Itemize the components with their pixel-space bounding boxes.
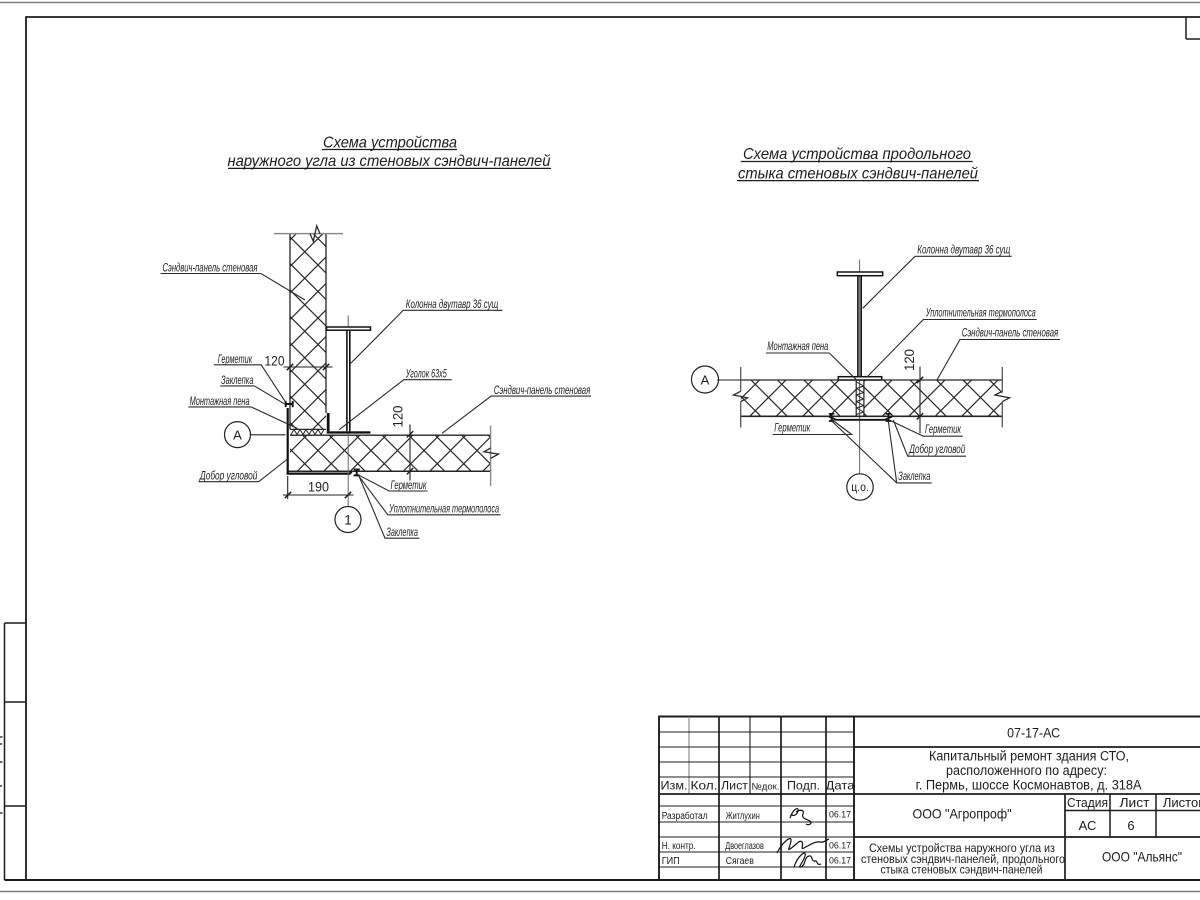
svg-text:Колонна двутавр 36 сущ: Колонна двутавр 36 сущ [917,244,1010,256]
svg-text:Лист: Лист [1120,795,1150,810]
svg-text:Герметик: Герметик [391,480,427,492]
svg-text:Сэндвич-панель стеновая: Сэндвич-панель стеновая [494,385,591,397]
svg-text:06.17: 06.17 [829,856,851,866]
svg-text:06.17: 06.17 [829,810,851,820]
svg-text:Уплотнительная термополоса: Уплотнительная термополоса [925,308,1036,320]
svg-text:ГИП: ГИП [662,856,680,867]
svg-text:Герметик: Герметик [925,424,961,436]
svg-text:Схема устройства продольного: Схема устройства продольного [743,146,971,163]
svg-text:Капитальный ремонт здания СТО,: Капитальный ремонт здания СТО, [929,749,1129,764]
svg-text:стыка стеновых сэндвич-панелей: стыка стеновых сэндвич-панелей [738,165,978,182]
svg-text:120: 120 [902,349,917,371]
svg-text:Заклепка: Заклепка [898,471,930,483]
svg-text:ц.о.: ц.о. [851,480,869,494]
svg-text:Листов: Листов [1163,795,1200,810]
svg-text:расположенного по адресу:: расположенного по адресу: [946,763,1107,778]
svg-text:Н. контр.: Н. контр. [662,841,696,852]
svg-text:120: 120 [265,353,285,368]
svg-text:№док.: №док. [752,782,780,793]
svg-text:Сэндвич-панель стеновая: Сэндвич-панель стеновая [163,263,258,275]
svg-text:А: А [701,372,710,387]
svg-text:Стадия: Стадия [1067,795,1108,810]
svg-text:Дата: Дата [826,779,855,793]
svg-text:Лист: Лист [721,779,749,793]
svg-text:Подп.: Подп. [787,779,820,793]
svg-text:Уплотнительная термополоса: Уплотнительная термополоса [388,504,499,516]
svg-text:Монтажная пена: Монтажная пена [190,396,250,408]
svg-text:190: 190 [308,480,329,495]
svg-text:наружного угла из стеновых сэн: наружного угла из стеновых сэндвич-панел… [228,153,551,170]
svg-text:Герметик: Герметик [218,354,253,366]
svg-text:ООО "Агропроф": ООО "Агропроф" [913,806,1012,822]
svg-text:Двоеглазов: Двоеглазов [725,841,764,852]
svg-text:Кол.: Кол. [691,779,718,793]
svg-text:стыка стеновых сэндвич-панелей: стыка стеновых сэндвич-панелей [881,863,1043,877]
svg-text:Заклепка: Заклепка [386,527,418,539]
svg-text:Монтажная пена: Монтажная пена [767,341,828,353]
svg-text:Добор угловой: Добор угловой [908,444,966,456]
svg-text:Сэндвич-панель стеновая: Сэндвич-панель стеновая [962,328,1058,340]
svg-text:120: 120 [391,406,406,428]
svg-text:Схема устройства: Схема устройства [323,134,457,151]
svg-text:Герметик: Герметик [774,423,810,435]
svg-text:Добор угловой: Добор угловой [198,471,257,483]
svg-text:АС: АС [1079,818,1097,833]
svg-text:Заклепка: Заклепка [221,375,254,387]
svg-text:Житлухин: Житлухин [726,811,760,822]
svg-text:Сягаев: Сягаев [726,856,754,867]
svg-text:Уголок 63х5: Уголок 63х5 [405,369,447,381]
svg-text:Колонна двутавр 36 сущ: Колонна двутавр 36 сущ [406,299,499,311]
svg-text:Разработал: Разработал [662,810,708,822]
svg-text:г. Пермь, шоссе Космонавтов, д: г. Пермь, шоссе Космонавтов, д. 318А [916,778,1142,793]
svg-text:Изм.: Изм. [661,779,688,793]
svg-text:А: А [233,427,242,442]
svg-text:06.17: 06.17 [829,841,851,851]
svg-text:6: 6 [1127,818,1134,833]
svg-text:1: 1 [344,513,352,528]
svg-text:ООО "Альянс": ООО "Альянс" [1102,849,1182,865]
svg-text:07-17-АС: 07-17-АС [1007,725,1060,741]
